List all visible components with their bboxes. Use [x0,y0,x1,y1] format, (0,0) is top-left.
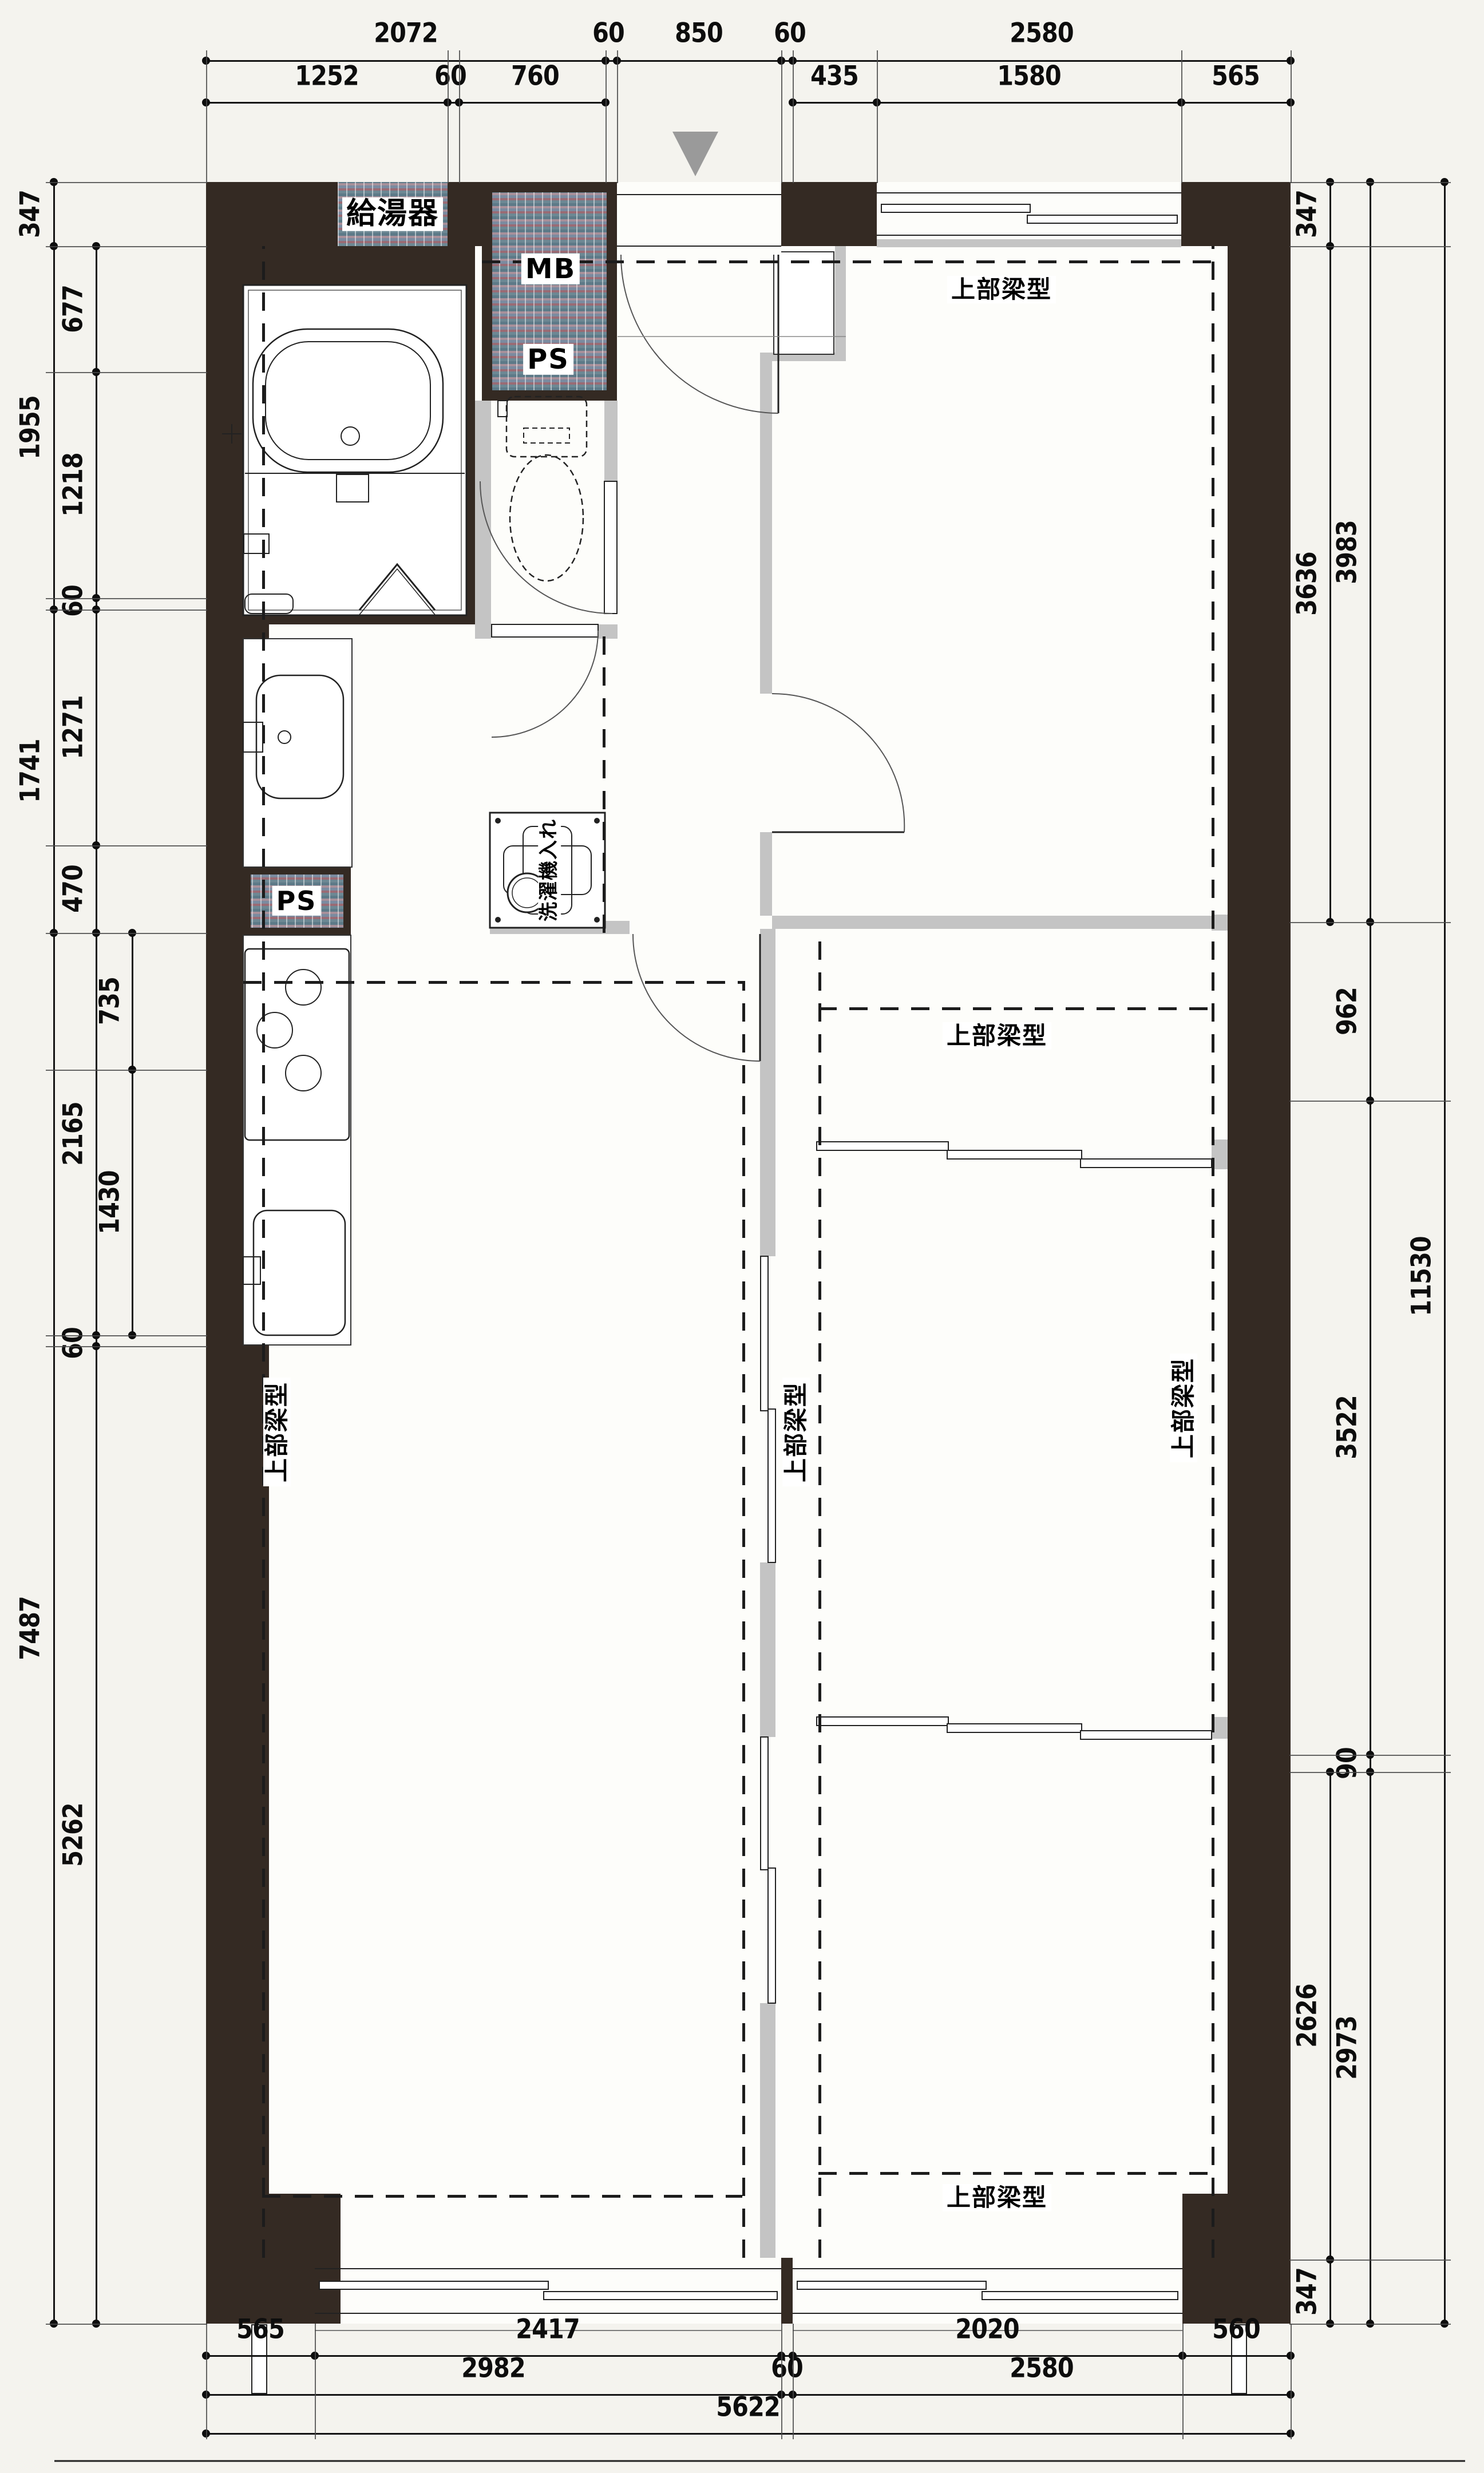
upper-beam-dashed-line [243,981,742,984]
dimension-value: 60 [592,18,624,49]
extension-line [1291,2324,1292,2439]
extension-line [206,50,207,183]
upper-beam-dashed-line [262,2195,742,2198]
window-top-sash-2 [1027,215,1177,223]
extension-line [793,2324,794,2439]
extension-line [1289,2324,1451,2325]
upper-beam-dashed-line [818,2172,1212,2175]
dimension-value: 60 [58,1327,89,1359]
floor-plan-sheet: 給湯器MBPSPS洗濯機入れ上部梁型上部梁型上部梁型上部梁型上部梁型上部梁型 2… [0,0,1484,2473]
dimension-line [206,2433,1291,2435]
entrance-door-arc [621,255,778,413]
dimension-value: 1955 [15,395,46,460]
dimension-value: 565 [236,2314,284,2345]
extension-line [877,50,878,183]
extension-line [1289,246,1451,247]
washroom-door-arc [480,481,612,614]
dimension-line [206,60,1291,62]
entrance-opening [617,182,781,255]
extension-line [1289,1772,1451,1773]
dimension-value: 5622 [716,2392,780,2423]
sliding-door-center-2b [768,1868,775,2003]
window-se-sash-1 [797,2281,986,2289]
sliding-partition-r1b [947,1150,1082,1159]
dimension-value: 1252 [295,61,359,92]
extension-line [46,1070,207,1071]
upper-beam-dashed-line [482,260,1219,263]
extension-line [606,50,607,183]
washer-screw-3 [495,917,501,923]
dimension-value: 2580 [1010,18,1074,49]
dimension-value: 60 [774,18,806,49]
dimension-value: 2417 [516,2314,580,2345]
upper-beam-dashed-line [1212,246,1214,2258]
dimension-value: 565 [1212,61,1260,92]
dimension-value: 2165 [58,1102,89,1166]
ldk-door-arc [633,934,760,1061]
extension-line [1291,50,1292,183]
extension-line [46,845,207,846]
extension-line [46,372,207,373]
upper-beam-dashed-line [742,981,745,2258]
dimension-value: 3522 [1332,1395,1363,1459]
dimension-value: 2982 [461,2353,525,2384]
extension-line [1289,1755,1451,1756]
dimension-value: 962 [1332,987,1363,1035]
sliding-partition-r2a [817,1717,948,1726]
dimension-value: 2626 [1292,1984,1323,2048]
dimension-value: 11530 [1406,1236,1438,1316]
dimension-line [53,182,55,2324]
extension-line [793,50,794,183]
toilet-tank-lid [524,428,569,443]
dimension-line [1370,182,1371,2324]
extension-line [1182,2324,1184,2439]
extension-line [617,50,618,183]
dimension-value: 470 [58,865,89,913]
dimension-line [96,246,97,2324]
extension-line [46,1346,207,1347]
extension-line [1181,50,1182,183]
extension-line [46,246,207,247]
window-sw-sash-1 [319,2281,548,2289]
dimension-value: 1580 [997,61,1061,92]
washer-screw-4 [594,917,600,923]
extension-line [46,2324,207,2325]
dimension-value: 850 [675,18,723,49]
sliding-partition-r1a [817,1142,948,1150]
dimension-value: 90 [1332,1747,1363,1779]
dimension-value: 2580 [1010,2353,1074,2384]
dimension-value: 347 [15,190,46,238]
meter-box-label: MB [521,254,580,284]
dimension-value: 435 [810,61,858,92]
upper-beam-label-room2: 上部梁型 [943,1022,1051,1050]
dimension-value: 677 [58,285,89,333]
toilet-door-leaf [492,624,598,637]
upper-beam-dashed-line [818,1007,1212,1010]
dimension-value: 760 [511,61,559,92]
upper-beam-label-ldk-west: 上部梁型 [263,1378,291,1486]
sliding-partition-r1c [1081,1159,1212,1168]
extension-line [1289,182,1451,183]
dimension-line [793,102,1291,104]
dimension-value: 735 [94,977,126,1025]
washroom-door-leaf [604,481,617,614]
water-heater-label: 給湯器 [342,197,443,231]
extension-line [315,2324,316,2439]
extension-line [1289,2260,1451,2261]
sliding-partition-r2c [1081,1731,1212,1739]
dimension-value: 1430 [94,1170,126,1234]
dimension-value: 7487 [15,1596,46,1660]
washer-screw-1 [495,818,501,824]
extension-line [46,182,207,183]
extension-line [459,50,460,183]
washing-machine-label: 洗濯機入れ [538,814,561,925]
extension-line [46,933,207,934]
dimension-value: 2072 [374,18,438,49]
dimension-line [206,102,606,104]
pipe-shaft-top-label: PS [523,344,573,375]
dimension-value: 1271 [58,695,89,759]
extension-line [46,610,207,611]
shoe-closet [774,252,834,354]
extension-line [1289,922,1451,923]
toilet-tank [506,397,587,457]
dimension-value: 2973 [1332,2016,1363,2080]
dimension-value: 60 [434,61,466,92]
bedroom1-door-arc [772,694,904,832]
extension-line [206,2324,207,2439]
dimension-line [1444,182,1446,2324]
toilet-door-arc [492,631,598,737]
dimension-value: 1741 [15,739,46,803]
sliding-door-center-2a [761,1737,768,1870]
sliding-door-center-1b [768,1409,775,1562]
upper-beam-label-bedroom1: 上部梁型 [947,276,1056,303]
sliding-door-center-1a [761,1256,768,1411]
dimension-value: 2020 [955,2314,1019,2345]
dimension-value: 60 [771,2353,803,2384]
dimension-line [132,933,133,1335]
dimension-value: 3983 [1332,520,1363,584]
extension-line [46,1335,207,1336]
dimension-value: 3636 [1292,552,1323,616]
dimension-value: 1218 [58,453,89,517]
washbasin-counter [243,639,352,867]
extension-line [1289,1101,1451,1102]
washer-screw-2 [594,818,600,824]
extension-line [781,50,782,183]
dimension-value: 60 [58,585,89,617]
window-se-sash-2 [982,2292,1178,2300]
dimension-value: 347 [1292,2268,1323,2316]
window-top-sash-1 [881,204,1030,212]
extension-line [448,50,449,183]
toilet-bowl [510,455,583,581]
upper-beam-label-center: 上部梁型 [782,1378,810,1486]
dimension-value: 5262 [58,1803,89,1867]
upper-beam-dashed-line [818,934,821,2258]
pipe-shaft-left-label: PS [272,886,321,916]
toilet-handle [498,401,507,417]
dimension-line [206,2355,1291,2357]
dimension-value: 347 [1292,190,1323,238]
extension-line [781,2324,782,2439]
upper-beam-label-east: 上部梁型 [1170,1354,1197,1462]
dimension-value: 560 [1212,2314,1260,2345]
extension-line [46,598,207,599]
sliding-partition-r2b [947,1724,1082,1732]
upper-beam-label-room3: 上部梁型 [943,2184,1051,2211]
upper-beam-dashed-line [262,246,265,2258]
upper-beam-dashed-line [603,624,606,933]
entrance-triangle-marker [672,132,718,176]
window-sw-sash-2 [544,2292,777,2300]
